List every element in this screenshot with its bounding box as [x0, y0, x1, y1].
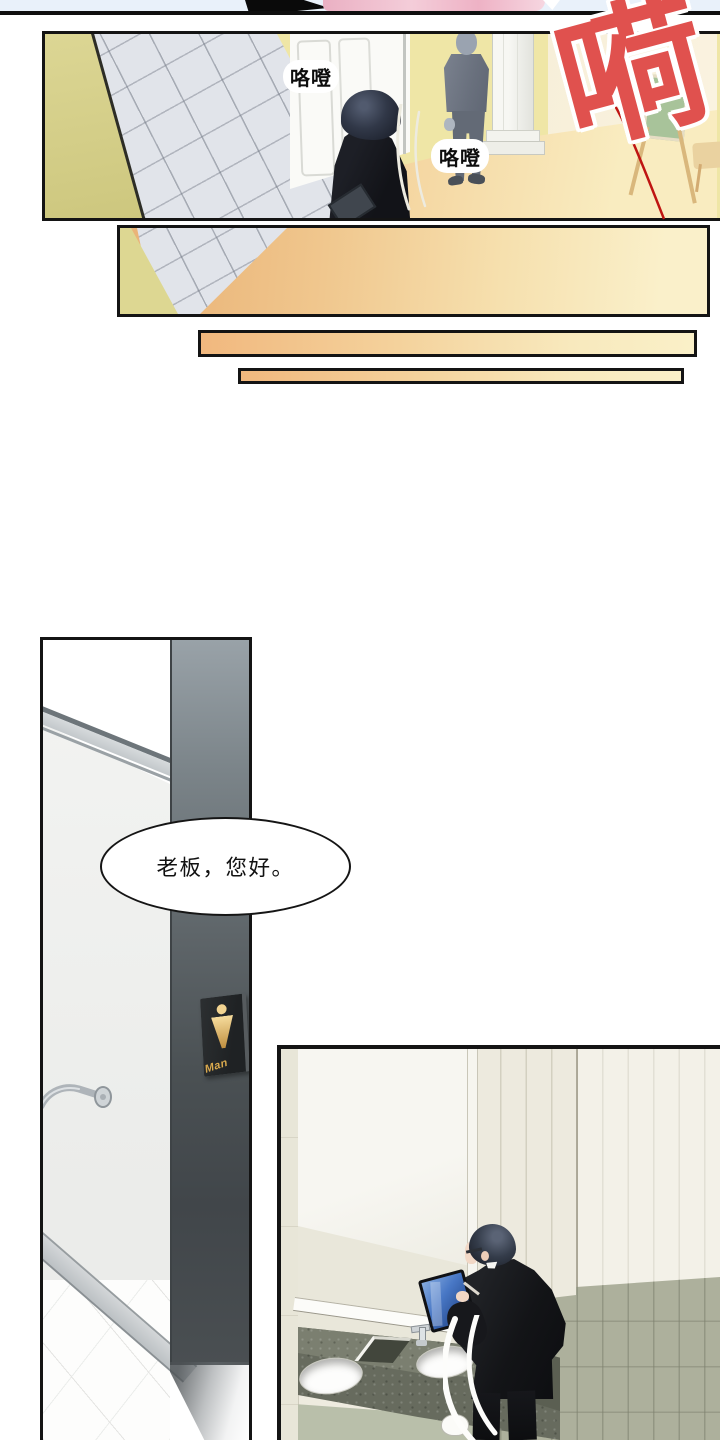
black-suit-figure-hair [341, 90, 401, 140]
sfx-bubble-footstep-1: 咯噔 [283, 60, 339, 93]
tiled-floor-wedge [120, 228, 707, 314]
motion-lines [395, 104, 427, 216]
motion-lines [443, 1315, 503, 1440]
panel-restroom-interior [277, 1045, 720, 1440]
speech-text: 老板，您好。 [156, 851, 294, 882]
panel-restroom-door: Man [40, 637, 252, 1440]
jamb-floor-shadow [170, 1362, 249, 1440]
person-hand [456, 1291, 469, 1302]
restroom-door-face [43, 710, 170, 1310]
floor-bar-panel-1 [198, 330, 697, 357]
gray-suit-figure-torso [443, 54, 489, 112]
sfx-footstep-text: 咯噔 [439, 142, 481, 171]
person-hair [469, 1224, 516, 1266]
pink-figure-shape [323, 0, 545, 11]
column-base [481, 141, 545, 155]
faucet-base [416, 1340, 427, 1346]
sfx-exclamation-text: 嗬 [542, 0, 720, 164]
gray-suit-figure-head [456, 31, 477, 55]
sfx-bubble-footstep-2: 咯噔 [431, 139, 489, 173]
comic-page: 咯噔 咯噔 嗬 [0, 0, 720, 1440]
gray-suit-figure-hand [444, 118, 455, 131]
silhouette-hair-shape [245, 0, 329, 11]
sfx-footstep-text: 咯噔 [290, 62, 332, 91]
speech-bubble: 老板，您好。 [100, 817, 351, 916]
man-sign-label: Man [204, 1057, 230, 1076]
person-ear [481, 1251, 489, 1261]
man-icon [210, 1003, 234, 1050]
person-leg-right [507, 1391, 537, 1440]
panel-floor-strip [117, 225, 710, 317]
man-sign: Man [200, 993, 250, 1077]
restroom-wall-left-strip [281, 1049, 299, 1440]
door-handle [40, 1080, 121, 1120]
floor-bar-panel-2 [238, 368, 684, 384]
